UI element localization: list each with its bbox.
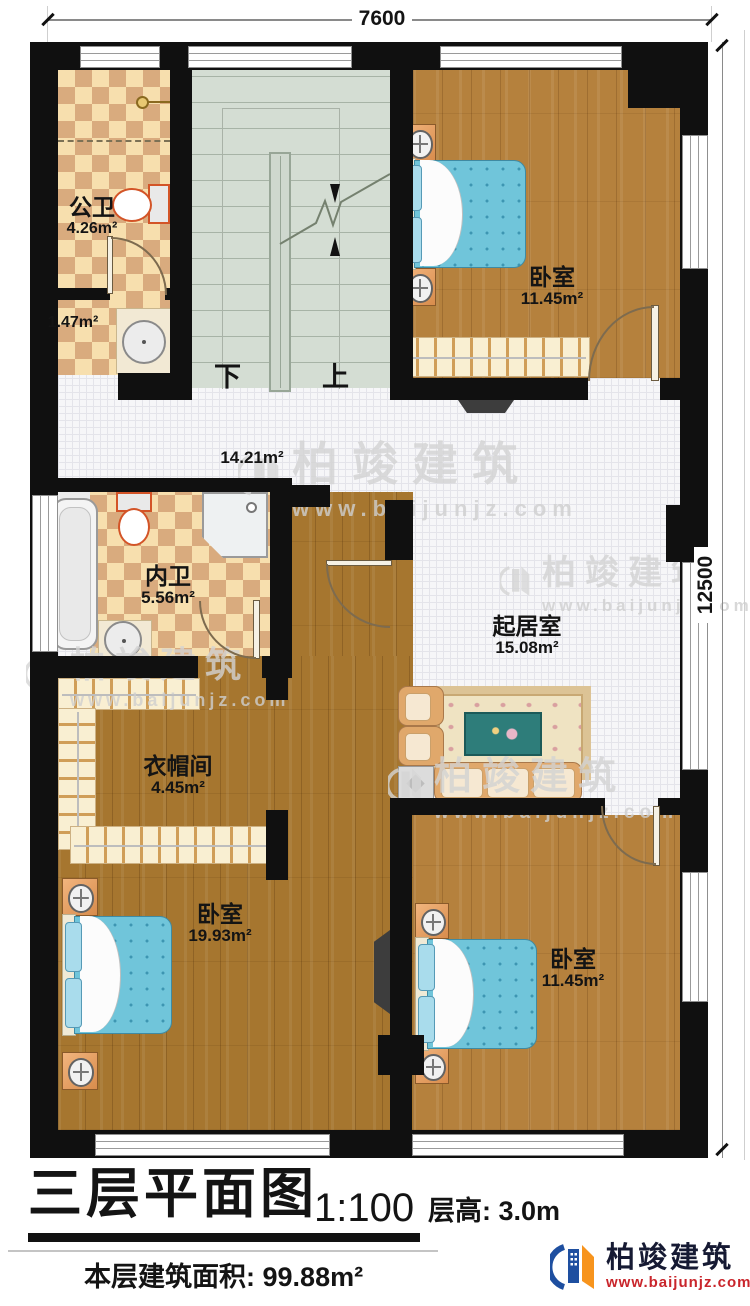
lamp-icon xyxy=(421,909,445,936)
armchair-cushion xyxy=(405,693,431,721)
nightstand xyxy=(62,878,98,916)
pillow-icon xyxy=(65,922,82,972)
tv-icon xyxy=(458,400,514,413)
bathtub-basin xyxy=(59,507,91,641)
room-label-public-bath: 公卫 xyxy=(42,196,142,219)
side-table-decor xyxy=(406,774,424,792)
toilet-bowl-icon xyxy=(118,508,150,546)
room-area-cloakroom: 4.45m² xyxy=(128,779,228,796)
floor-height-row: 层高: 3.0m xyxy=(428,1198,560,1225)
dim-extension-line xyxy=(47,6,48,42)
room-area-bedroom-top: 11.45m² xyxy=(502,290,602,307)
window xyxy=(682,135,708,269)
window xyxy=(80,46,160,68)
room-area-living-room: 15.08m² xyxy=(477,639,577,656)
pillow-icon xyxy=(418,944,435,991)
sheet-scale: 1:100 xyxy=(314,1188,414,1228)
sink-basin-icon xyxy=(122,320,166,364)
wall-corner-top-right xyxy=(628,42,708,108)
sofa-cushion xyxy=(487,768,529,798)
stair-arrow-up-icon xyxy=(330,237,340,256)
shower-head-icon xyxy=(246,502,257,513)
room-label-bedroom-left: 卧室 xyxy=(170,903,270,926)
dim-top-value: 7600 xyxy=(352,6,412,32)
wall-stairs-left xyxy=(170,70,192,400)
dim-right-value: 12500 xyxy=(694,547,718,623)
wall-suite-entry xyxy=(292,485,330,507)
title-underline-thin xyxy=(8,1250,438,1252)
wall-bedroom-divider xyxy=(390,815,412,1130)
brand-website: www.baijunjz.com xyxy=(606,1274,750,1291)
side-table xyxy=(398,766,434,802)
brand-logo-icon xyxy=(550,1238,598,1296)
room-area-public-bath: 4.26m² xyxy=(42,221,142,237)
wardrobe-strip xyxy=(400,337,590,377)
bedroom-left-floor xyxy=(58,656,413,1130)
window xyxy=(412,1134,624,1156)
wall-lobby-bottom xyxy=(118,373,170,400)
wall-suite-pier xyxy=(385,500,413,560)
wall-ensuite-bottom xyxy=(58,656,198,678)
wall-bedroom-top-bottom xyxy=(413,378,588,400)
tv-icon xyxy=(374,930,390,1014)
wall-cloak-pier xyxy=(266,810,288,880)
sofa-cushion xyxy=(533,768,575,798)
pillow-icon xyxy=(65,978,82,1028)
dim-boundary-line xyxy=(744,30,745,1160)
wall-bedroom-top-bottom xyxy=(660,378,680,400)
window xyxy=(682,872,708,1002)
wall-bath-divider xyxy=(58,288,110,300)
window xyxy=(188,46,352,68)
armchair xyxy=(398,726,444,766)
room-area-bedroom-left: 19.93m² xyxy=(170,927,270,944)
coffee-table xyxy=(464,712,542,756)
wardrobe-strip xyxy=(70,826,270,864)
stairs-down-label: 下 xyxy=(214,364,241,391)
floor-area-label: 本层建筑面积: xyxy=(84,1262,255,1292)
bed-left xyxy=(62,914,170,1034)
stair-arrow-down-icon xyxy=(330,184,340,203)
wardrobe-strip xyxy=(58,678,200,710)
lamp-icon xyxy=(68,884,94,912)
wall-living-bottom xyxy=(390,798,605,815)
room-label-bedroom-right: 卧室 xyxy=(523,948,623,971)
floor-height-label: 层高: xyxy=(428,1196,491,1226)
dim-line-right xyxy=(722,42,723,1158)
room-label-living-room: 起居室 xyxy=(477,615,577,638)
wall-bedroom-top-left xyxy=(390,70,413,400)
room-area-hallway: 14.21m² xyxy=(202,449,302,466)
room-label-cloakroom: 衣帽间 xyxy=(128,755,228,778)
room-label-bedroom-top: 卧室 xyxy=(502,266,602,289)
nightstand xyxy=(62,1052,98,1090)
dim-extension-line xyxy=(711,6,712,42)
sofa-cushion xyxy=(441,768,483,798)
lamp-icon xyxy=(421,1054,445,1081)
armchair xyxy=(398,686,444,726)
stair-break-line xyxy=(192,70,390,388)
armchair-cushion xyxy=(405,733,431,761)
window xyxy=(440,46,622,68)
knob-arm xyxy=(147,101,170,103)
wall-cloak-pier xyxy=(266,678,288,700)
wall-ensuite-top xyxy=(50,478,292,492)
wall-divider-pier xyxy=(378,1035,424,1075)
window xyxy=(95,1134,330,1156)
bathtub-icon xyxy=(52,498,98,650)
title-underline-thick xyxy=(28,1233,420,1242)
room-area-ensuite-bath: 5.56m² xyxy=(118,589,218,606)
floor-area-row: 本层建筑面积: 99.88m² xyxy=(84,1264,363,1291)
room-area-bedroom-right: 11.45m² xyxy=(523,972,623,989)
nightstand xyxy=(415,903,449,939)
room-area-bath-lobby: 1.47m² xyxy=(28,315,118,331)
bed-right xyxy=(415,937,535,1049)
wall-ensuite-bottom xyxy=(262,656,292,678)
sink-basin-icon xyxy=(104,621,142,659)
sheet-title: 三层平面图 xyxy=(28,1167,318,1221)
shower-curtain-line xyxy=(58,140,170,142)
bed-top xyxy=(402,158,524,268)
window xyxy=(32,495,58,652)
stairs-up-label: 上 xyxy=(322,364,349,391)
lamp-icon xyxy=(68,1058,94,1086)
wall-ensuite-right xyxy=(270,478,292,678)
room-label-ensuite-bath: 内卫 xyxy=(118,565,218,588)
brand-logo: 柏竣建筑 www.baijunjz.com xyxy=(550,1238,750,1296)
floor-area-value: 99.88m² xyxy=(263,1262,364,1292)
sofa xyxy=(434,762,582,802)
brand-name: 柏竣建筑 xyxy=(606,1243,750,1273)
floor-height-value: 3.0m xyxy=(499,1196,561,1226)
wall-living-bottom xyxy=(658,798,680,815)
floor-plan-page: 柏竣建筑 www.baijunjz.com 柏竣建筑 www.baijunjz.… xyxy=(0,0,750,1306)
